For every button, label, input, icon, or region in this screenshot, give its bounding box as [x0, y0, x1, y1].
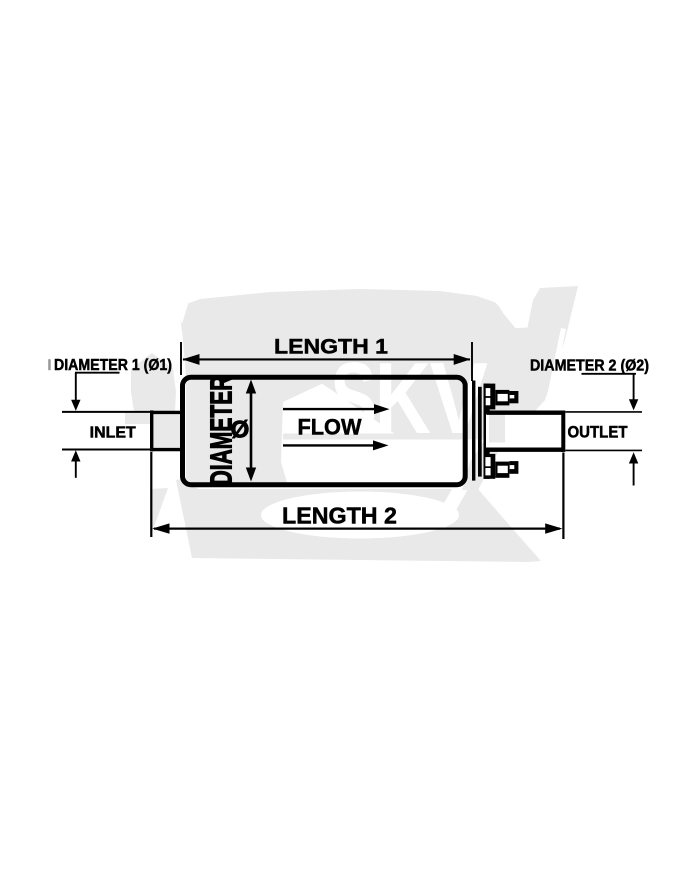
- svg-text:INLET: INLET: [90, 425, 137, 442]
- svg-text:LENGTH 1: LENGTH 1: [274, 335, 388, 359]
- svg-text:DIAMETER 2 (Ø2): DIAMETER 2 (Ø2): [530, 357, 649, 374]
- svg-text:DIAMETER 1 (Ø1): DIAMETER 1 (Ø1): [54, 357, 172, 374]
- svg-text:FLOW: FLOW: [298, 415, 362, 440]
- svg-text:Ø: Ø: [231, 417, 250, 444]
- svg-text:LENGTH 2: LENGTH 2: [282, 503, 397, 529]
- svg-text:OUTLET: OUTLET: [568, 423, 628, 441]
